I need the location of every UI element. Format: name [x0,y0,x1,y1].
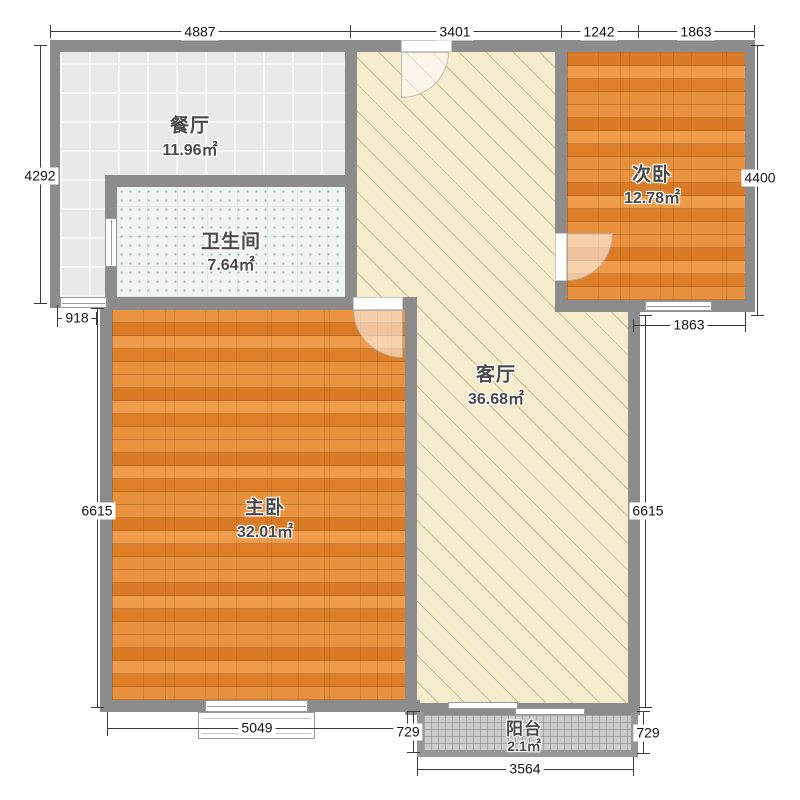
dim-right-6615: 6615 [629,503,666,520]
wall-dining-living [345,40,357,308]
secondary-bedroom-window [645,301,712,311]
dim-right-inner-tick-2 [639,707,652,708]
dim-3564-ext-2 [633,757,634,775]
dim-3564: 3564 [506,761,543,778]
dim-top-tick-5 [754,25,755,38]
dim-bottom-1863: 1863 [670,317,707,334]
dim-1863-tick-1 [633,319,634,332]
wall-master-right [405,297,417,715]
secondary-bedroom-area: 12.78㎡ [624,184,680,208]
secondary-bedroom-label: 次卧 [632,160,672,187]
balcony-area: 2.1㎡ [507,736,540,756]
bathroom-area: 7.64㎡ [207,251,254,275]
dim-5049-ext-1 [107,712,108,736]
bathroom-label: 卫生间 [201,227,261,254]
dim-729-right: 729 [633,725,662,742]
dining-room-area: 11.96㎡ [162,136,217,160]
dim-left-inner-tick-2 [91,707,104,708]
dim-729L-tick-1 [407,711,420,712]
dim-top-1242: 1242 [580,24,617,41]
dim-top-line [50,31,755,32]
secondary-bedroom-door-opening [555,233,567,281]
dim-right-outer-tick-1 [751,45,764,46]
dim-left-inner-tick-1 [91,308,104,309]
dim-top-1863: 1863 [677,24,714,41]
master-bedroom-area: 32.01㎡ [237,518,293,542]
dim-729-left: 729 [393,724,422,741]
dim-729L-tick-2 [407,752,420,753]
dim-top-4887: 4887 [181,24,218,41]
dining-window [60,297,107,308]
dim-5049: 5049 [238,720,275,737]
dim-729R-tick-1 [637,711,650,712]
living-room-area: 36.68㎡ [468,385,524,409]
dim-918-tick-2 [96,312,97,325]
dim-top-3401: 3401 [436,24,473,41]
bathroom-door-line [111,220,112,265]
balcony-slider-left-panel [448,702,518,709]
dim-top-tick-2 [350,25,351,38]
dim-top-tick-1 [50,25,51,38]
master-bedroom-door-opening [353,297,403,310]
dim-3564-ext-1 [417,757,418,775]
dim-top-tick-3 [561,25,562,38]
dim-1863-ext [745,312,746,332]
dining-window-line [62,303,105,304]
living-room-label: 客厅 [476,360,516,387]
master-bedroom-label: 主卧 [245,493,285,520]
dim-left-outer-tick-2 [34,303,47,304]
bathroom-door [105,218,117,267]
floor-plan: 餐厅 11.96㎡ 卫生间 7.64㎡ 次卧 12.78㎡ 客厅 36.68㎡ … [0,0,800,800]
dim-729R-tick-2 [637,753,650,754]
dim-918: 918 [62,310,91,327]
dim-918-ext [57,305,58,327]
dim-right-4400: 4400 [741,170,778,187]
dim-left-6615: 6615 [78,503,115,520]
dim-left-outer-tick-1 [34,45,47,46]
secondary-bedroom-window-line [647,306,710,307]
dining-room-label: 餐厅 [170,111,210,138]
dim-top-tick-4 [638,25,639,38]
dim-right-inner-tick-1 [639,315,652,316]
dim-right-outer-tick-2 [751,315,764,316]
master-bay-window-line [207,706,306,707]
master-bay-window-opening [205,700,308,712]
wall-bathroom-top [105,175,357,187]
dim-left-4292: 4292 [21,168,58,185]
entrance-door-opening [401,40,452,52]
